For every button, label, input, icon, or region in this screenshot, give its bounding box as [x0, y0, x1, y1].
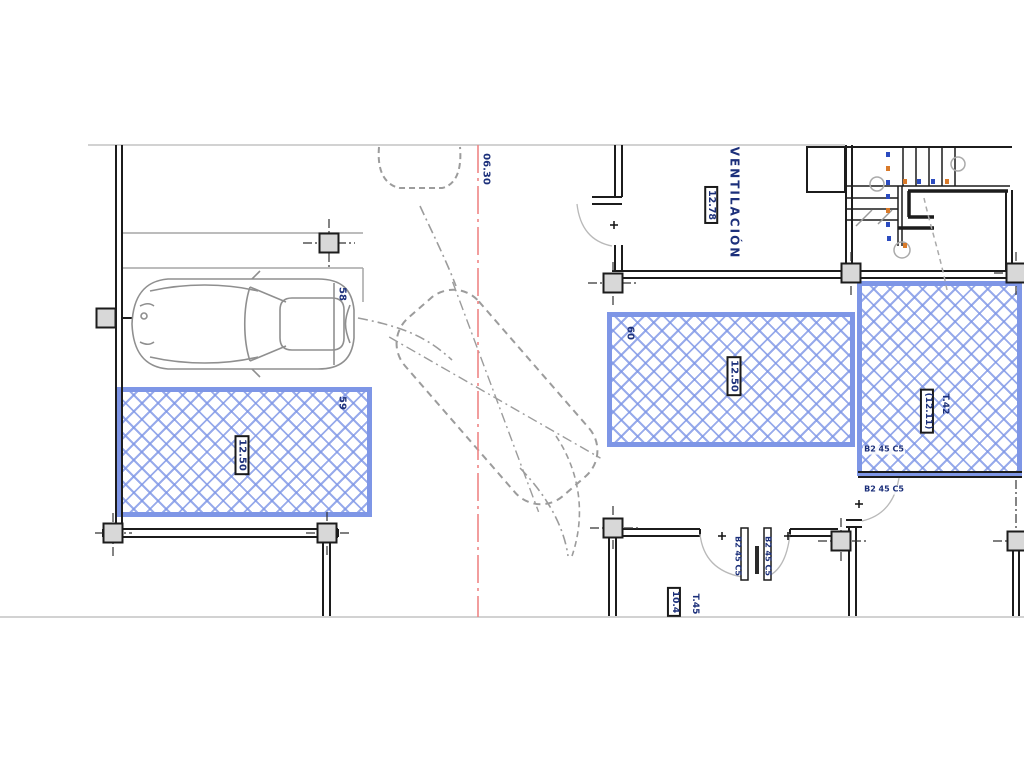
stall-t42-area-tag: (12.11)	[920, 389, 934, 434]
column	[1006, 263, 1024, 284]
stair-step-marks	[886, 152, 949, 248]
column	[1007, 531, 1024, 552]
door-spec-label: B2 45 C5	[733, 536, 742, 576]
centerline-dimension-label: 06.30	[481, 153, 492, 185]
ventilation-room-label: VENTILACIÓN	[727, 147, 740, 260]
plan-linework	[0, 0, 1024, 767]
column	[603, 518, 624, 539]
stall-59-area-tag: 12.50	[235, 435, 250, 475]
column	[317, 523, 338, 544]
maneuver-path-curves	[358, 147, 579, 556]
door-spec-label: B2 45 C5	[863, 486, 905, 495]
stall-60-area-tag: 12.50	[727, 356, 742, 396]
column	[319, 233, 340, 254]
stall-t45-label-group: 10.4 T.45	[640, 560, 730, 617]
ventilation-area-tag: 12.78	[704, 186, 718, 224]
stall-60-number: 60	[625, 326, 636, 340]
drawing-boundary-lines	[0, 145, 1024, 617]
parked-car	[132, 271, 354, 377]
column	[841, 263, 862, 284]
door-spec-label: B2 45 C5	[863, 446, 905, 455]
stall-58-number: 58	[337, 287, 348, 301]
ghost-car-outline	[383, 276, 612, 518]
column	[831, 531, 852, 552]
column	[96, 308, 117, 329]
column	[103, 523, 124, 544]
staircase	[845, 147, 1010, 290]
stall-t42-number: T.42	[939, 394, 949, 415]
stall-59-number: 59	[337, 396, 348, 410]
column	[603, 273, 624, 294]
stall-t45-number: T.45	[689, 594, 699, 615]
floor-plan-canvas: 06.30 VENTILACIÓN 12.78 58 59 12.50 60 1…	[0, 0, 1024, 767]
walls	[103, 145, 1022, 616]
door-spec-label: B2 45 C5	[763, 536, 772, 576]
stall-t45-area-tag: 10.4	[667, 587, 681, 617]
